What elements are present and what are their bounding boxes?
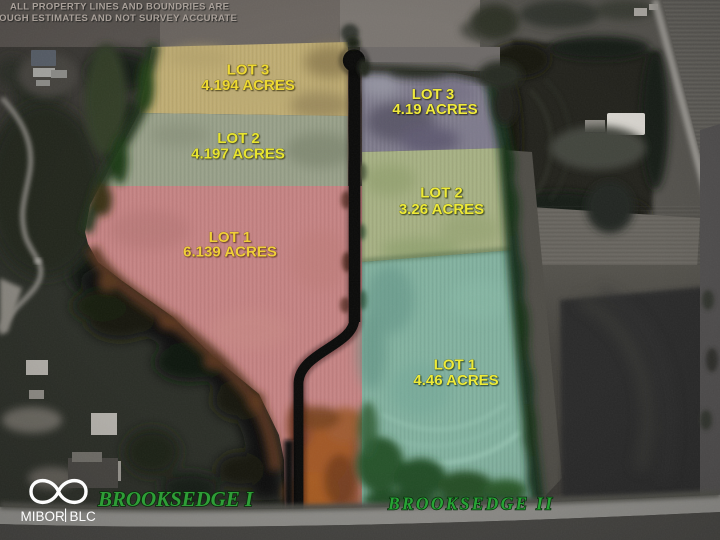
svg-text:BROOKSEDGE I: BROOKSEDGE I <box>97 487 254 511</box>
svg-text:ALL PROPERTY LINES AND BOUNDRI: ALL PROPERTY LINES AND BOUNDRIES ARE <box>10 2 229 13</box>
svg-text:ROUGH ESTIMATES AND NOT SURVEY: ROUGH ESTIMATES AND NOT SURVEY ACCURATE <box>0 13 237 24</box>
svg-text:MIBOR: MIBOR <box>21 509 66 524</box>
svg-text:3.26 ACRES: 3.26 ACRES <box>399 201 484 218</box>
svg-text:LOT 2: LOT 2 <box>420 185 463 202</box>
svg-text:4.197 ACRES: 4.197 ACRES <box>191 146 285 163</box>
svg-text:BLC: BLC <box>70 509 97 524</box>
svg-text:4.46 ACRES: 4.46 ACRES <box>413 372 498 389</box>
svg-text:4.194 ACRES: 4.194 ACRES <box>201 77 295 94</box>
svg-text:4.19 ACRES: 4.19 ACRES <box>392 101 477 118</box>
svg-text:6.139 ACRES: 6.139 ACRES <box>183 244 277 261</box>
svg-text:LOT 1: LOT 1 <box>434 357 477 374</box>
svg-text:LOT 2: LOT 2 <box>217 130 260 147</box>
svg-text:LOT 3: LOT 3 <box>227 62 270 79</box>
